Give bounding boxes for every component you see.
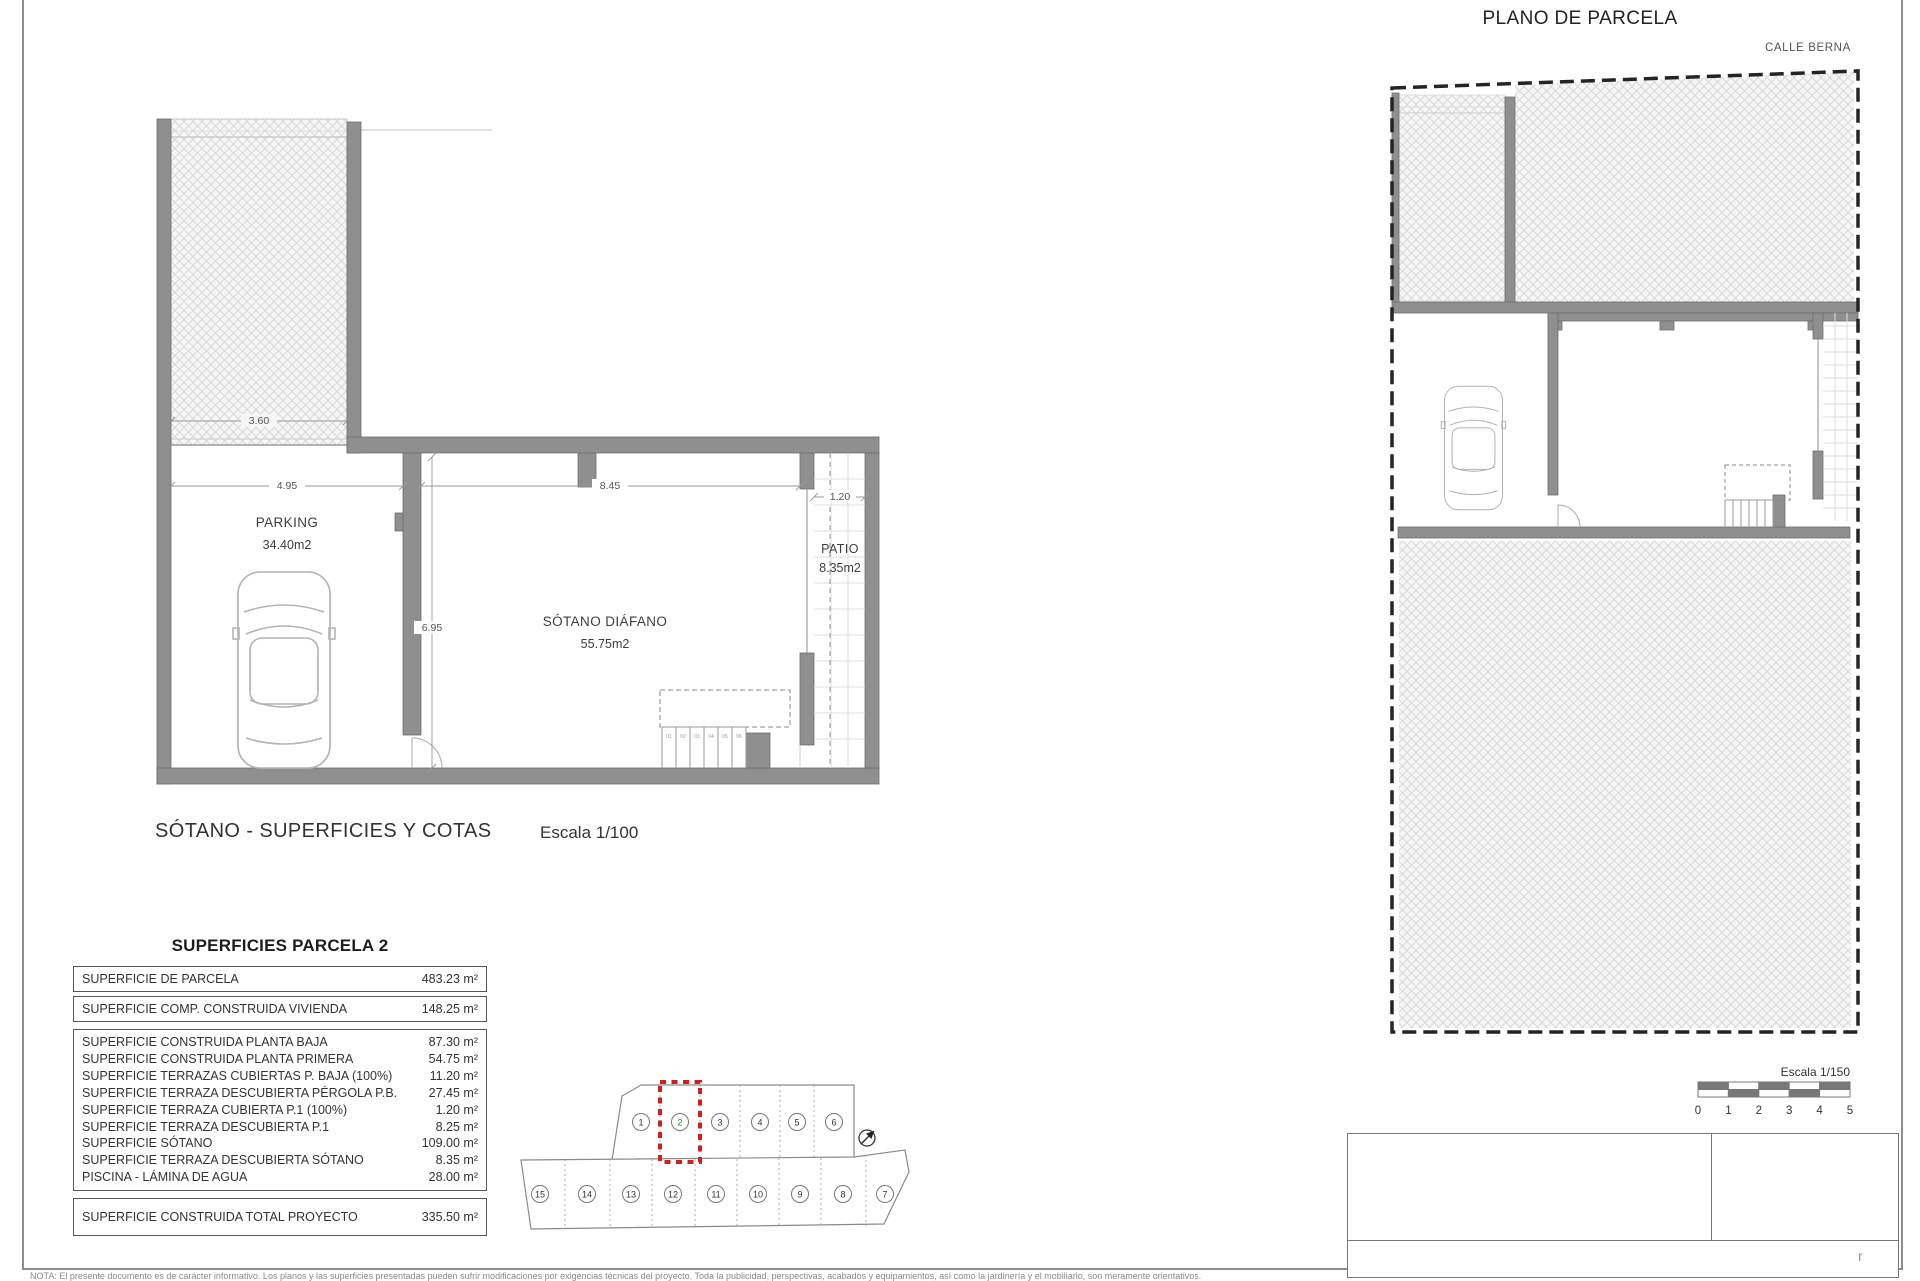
- door-swing: [412, 738, 442, 768]
- row-label: SUPERFICIE CONSTRUIDA PLANTA PRIMERA: [82, 1051, 353, 1068]
- plot-number-highlighted: 2: [677, 1118, 682, 1128]
- patio-area-label: 8.35m2: [819, 561, 861, 575]
- row-label: SUPERFICIE CONSTRUIDA PLANTA BAJA: [82, 1034, 328, 1051]
- row-label: SUPERFICIE TERRAZAS CUBIERTAS P. BAJA (1…: [82, 1068, 392, 1085]
- parcel-key-plan: 1 2 3 4 5 6 15 14 13 12 11 10 9 8 7: [510, 1058, 930, 1238]
- table-row: SUPERFICIE SÓTANO 109.00 m²: [82, 1135, 478, 1152]
- ramp-hatch: [1399, 95, 1505, 301]
- row-value: 335.50 m²: [422, 1210, 478, 1224]
- scale-tick: 5: [1847, 1105, 1853, 1117]
- row-value: 87.30 m²: [429, 1034, 478, 1051]
- row-value: 54.75 m²: [429, 1051, 478, 1068]
- row-value: 109.00 m²: [422, 1135, 478, 1152]
- title-block-side-cell: [1711, 1133, 1899, 1242]
- table-row: SUPERFICIE TERRAZA DESCUBIERTA PÉRGOLA P…: [82, 1085, 478, 1102]
- dim-ramp-width: 3.60: [249, 415, 270, 427]
- row-label: SUPERFICIE TERRAZA DESCUBIERTA P.1: [82, 1119, 329, 1136]
- page-border-right: [1901, 0, 1903, 1270]
- dim-parking-width: 4.95: [277, 480, 298, 492]
- table-row: SUPERFICIE CONSTRUIDA PLANTA BAJA 87.30 …: [82, 1034, 478, 1051]
- title-block-main-cell: [1347, 1133, 1715, 1242]
- step-number: 04: [708, 734, 714, 740]
- car-top-view-icon: [233, 572, 335, 768]
- areas-total-row: SUPERFICIE CONSTRUIDA TOTAL PROYECTO 335…: [73, 1198, 487, 1236]
- row-value: 8.25 m²: [436, 1119, 478, 1136]
- scale-tick: 2: [1756, 1105, 1762, 1117]
- parking-area-label: 34.40m2: [263, 538, 312, 552]
- plot-number: 6: [831, 1118, 836, 1128]
- row-label: PISCINA - LÁMINA DE AGUA: [82, 1169, 247, 1186]
- step-number: 03: [694, 734, 700, 740]
- areas-table-title: SUPERFICIES PARCELA 2: [73, 936, 487, 956]
- areas-summary-rows: SUPERFICIE DE PARCELA 483.23 m² SUPERFIC…: [73, 966, 487, 1022]
- car-top-view-icon: [1441, 386, 1505, 509]
- step-number: 01: [666, 734, 672, 740]
- row-label: SUPERFICIE SÓTANO: [82, 1135, 212, 1152]
- row-value: 8.35 m²: [436, 1152, 478, 1169]
- table-row: SUPERFICIE CONSTRUIDA TOTAL PROYECTO 335…: [82, 1203, 478, 1231]
- north-arrow-icon: [859, 1130, 875, 1146]
- row-label: SUPERFICIE TERRAZA DESCUBIERTA PÉRGOLA P…: [82, 1085, 397, 1102]
- title-block-mark: r: [1858, 1248, 1863, 1264]
- scale-tick: 0: [1695, 1105, 1701, 1117]
- row-value: 1.20 m²: [436, 1102, 478, 1119]
- scale-tick: 1: [1725, 1105, 1731, 1117]
- street-label: CALLE BERNA: [1765, 42, 1851, 54]
- row-label: SUPERFICIE COMP. CONSTRUIDA VIVIENDA: [82, 1002, 347, 1016]
- site-patio: [1818, 313, 1858, 521]
- row-label: SUPERFICIE CONSTRUIDA TOTAL PROYECTO: [82, 1210, 358, 1224]
- sotano-area-label: 55.75m2: [581, 637, 630, 651]
- plot-number: 10: [753, 1190, 763, 1200]
- page-border-left: [22, 0, 24, 1270]
- table-row: SUPERFICIE TERRAZA CUBIERTA P.1 (100%) 1…: [82, 1102, 478, 1119]
- row-label: SUPERFICIE TERRAZA DESCUBIERTA SÓTANO: [82, 1152, 364, 1169]
- plot-number: 3: [717, 1118, 722, 1128]
- table-row: PISCINA - LÁMINA DE AGUA 28.00 m²: [82, 1169, 478, 1186]
- step-number: 05: [722, 734, 728, 740]
- site-plan: [1380, 55, 1880, 1045]
- garden-hatch: [1399, 541, 1851, 1028]
- site-plan-title: PLANO DE PARCELA: [1380, 8, 1780, 30]
- parking-label: PARKING: [256, 515, 319, 530]
- step-number: 02: [680, 734, 686, 740]
- scale-tick: 3: [1786, 1105, 1792, 1117]
- row-value: 27.45 m²: [429, 1085, 478, 1102]
- basement-floor-plan: 3.60: [130, 90, 910, 800]
- sotano-label: SÓTANO DIÁFANO: [543, 614, 668, 629]
- table-row: SUPERFICIE TERRAZA DESCUBIERTA P.1 8.25 …: [82, 1119, 478, 1136]
- areas-detail-rows: SUPERFICIE CONSTRUIDA PLANTA BAJA 87.30 …: [73, 1029, 487, 1191]
- basement-caption: SÓTANO - SUPERFICIES Y COTAS: [155, 820, 491, 843]
- plot-number: 15: [535, 1190, 545, 1200]
- plot-number: 9: [797, 1190, 802, 1200]
- row-value: 148.25 m²: [422, 1002, 478, 1016]
- table-row: SUPERFICIE DE PARCELA 483.23 m²: [73, 966, 487, 992]
- dim-depth: 6.95: [422, 622, 443, 634]
- plot-number: 12: [668, 1190, 678, 1200]
- row-value: 483.23 m²: [422, 972, 478, 986]
- ramp-area: 3.60: [167, 119, 492, 445]
- plot-number: 1: [638, 1118, 643, 1128]
- table-row: SUPERFICIE TERRAZA DESCUBIERTA SÓTANO 8.…: [82, 1152, 478, 1169]
- row-label: SUPERFICIE DE PARCELA: [82, 972, 239, 986]
- door-swing: [1558, 505, 1580, 527]
- dim-sotano-width: 8.45: [600, 480, 621, 492]
- step-number: 06: [736, 734, 742, 740]
- street-strip-hatch: [1515, 72, 1854, 302]
- table-row: SUPERFICIE TERRAZAS CUBIERTAS P. BAJA (1…: [82, 1068, 478, 1085]
- basement-stairs: 01 02 03 04 05 06: [660, 690, 790, 768]
- scale-tick: 4: [1816, 1105, 1823, 1117]
- row-value: 11.20 m²: [430, 1068, 478, 1085]
- dim-patio-width: 1.20: [830, 491, 851, 503]
- scale-bar-label: Escala 1/150: [1781, 1065, 1851, 1079]
- plot-number: 4: [757, 1118, 762, 1128]
- row-value: 28.00 m²: [429, 1169, 478, 1186]
- scale-bar: Escala 1/150 0 1 2 3 4 5: [1690, 1062, 1865, 1122]
- plot-number: 5: [794, 1118, 799, 1128]
- plot-number: 8: [840, 1190, 845, 1200]
- dimension-lines: 4.95 8.45 1.20 6.95: [167, 453, 869, 772]
- plot-number: 14: [582, 1190, 592, 1200]
- plot-number: 11: [711, 1190, 720, 1200]
- plot-number: 13: [626, 1190, 636, 1200]
- table-row: SUPERFICIE COMP. CONSTRUIDA VIVIENDA 148…: [73, 996, 487, 1022]
- row-label: SUPERFICIE TERRAZA CUBIERTA P.1 (100%): [82, 1102, 347, 1119]
- patio-label: PATIO: [821, 542, 859, 556]
- basement-scale-label: Escala 1/100: [540, 823, 638, 843]
- areas-table: SUPERFICIES PARCELA 2 SUPERFICIE DE PARC…: [73, 936, 487, 1236]
- table-row: SUPERFICIE CONSTRUIDA PLANTA PRIMERA 54.…: [82, 1051, 478, 1068]
- plot-number: 7: [882, 1190, 887, 1200]
